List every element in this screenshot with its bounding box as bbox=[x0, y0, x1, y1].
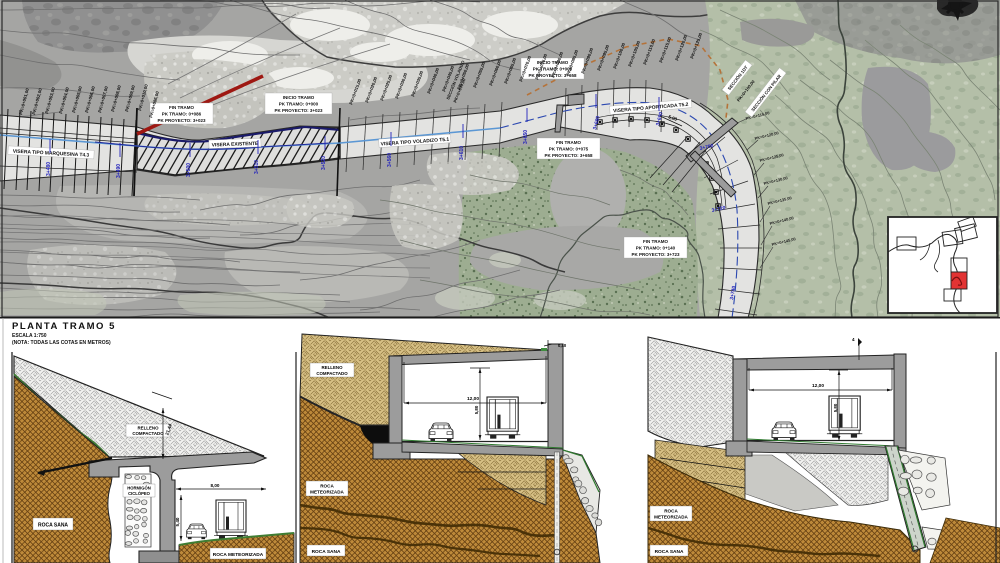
svg-text:5,40: 5,40 bbox=[175, 517, 180, 526]
svg-text:ROCA SANA: ROCA SANA bbox=[312, 549, 341, 555]
svg-text:PK TRAMO: 0+086: PK TRAMO: 0+086 bbox=[162, 112, 202, 117]
svg-text:8,00: 8,00 bbox=[211, 483, 220, 488]
svg-text:(NOTA: TODAS LAS COTAS EN METR: (NOTA: TODAS LAS COTAS EN METROS) bbox=[12, 340, 111, 346]
svg-text:ROCA: ROCA bbox=[664, 509, 678, 514]
svg-text:PK TRAMO: 0+075: PK TRAMO: 0+075 bbox=[549, 147, 589, 152]
svg-text:METEORIZADA: METEORIZADA bbox=[310, 490, 344, 495]
svg-text:FIN TRAMO: FIN TRAMO bbox=[556, 140, 581, 145]
svg-text:INICIO TRAMO: INICIO TRAMO bbox=[283, 95, 315, 100]
svg-text:3+650: 3+650 bbox=[523, 130, 529, 144]
svg-text:3+520: 3+520 bbox=[321, 156, 327, 170]
svg-text:PK PROYECTO: 3+023: PK PROYECTO: 3+023 bbox=[157, 118, 206, 123]
svg-text:PK PROYECTO: 3+723: PK PROYECTO: 3+723 bbox=[631, 252, 680, 257]
svg-text:ESCALA 1:750: ESCALA 1:750 bbox=[12, 333, 47, 339]
svg-text:PK PROYECTO: 3+658: PK PROYECTO: 3+658 bbox=[544, 153, 593, 158]
svg-text:0,40: 0,40 bbox=[558, 343, 567, 348]
svg-text:3+490: 3+490 bbox=[116, 164, 122, 178]
svg-text:COMPACTADO: COMPACTADO bbox=[132, 431, 164, 436]
svg-text:PK TRAMO: 0+000: PK TRAMO: 0+000 bbox=[279, 102, 319, 107]
svg-text:PK PROYECTO: 3+023: PK PROYECTO: 3+023 bbox=[274, 108, 323, 113]
svg-text:3+480: 3+480 bbox=[46, 162, 52, 176]
svg-text:5,80: 5,80 bbox=[474, 405, 479, 414]
svg-text:12,00: 12,00 bbox=[812, 383, 824, 389]
svg-text:12,00: 12,00 bbox=[467, 396, 479, 402]
svg-text:3+500: 3+500 bbox=[186, 163, 192, 177]
svg-text:PK TRAMO: 0+140: PK TRAMO: 0+140 bbox=[636, 246, 676, 251]
svg-text:COMPACTADO: COMPACTADO bbox=[316, 371, 348, 376]
svg-text:ROCA METEORIZADA: ROCA METEORIZADA bbox=[213, 552, 264, 558]
svg-text:PLANTA TRAMO 5: PLANTA TRAMO 5 bbox=[12, 321, 116, 332]
svg-text:RELLENO: RELLENO bbox=[138, 426, 160, 431]
svg-text:3+610: 3+610 bbox=[459, 146, 465, 160]
svg-text:RELLENO: RELLENO bbox=[322, 365, 344, 370]
svg-text:3+510: 3+510 bbox=[254, 160, 260, 174]
svg-text:CICLÓPEO: CICLÓPEO bbox=[128, 491, 151, 496]
svg-text:HORMIGÓN: HORMIGÓN bbox=[127, 486, 151, 491]
svg-text:5,80: 5,80 bbox=[833, 403, 838, 412]
svg-text:3+560: 3+560 bbox=[387, 153, 393, 167]
svg-text:FIN TRAMO: FIN TRAMO bbox=[169, 105, 194, 110]
svg-text:ROCA SANA: ROCA SANA bbox=[655, 549, 684, 555]
svg-text:ROCA SANA: ROCA SANA bbox=[38, 523, 68, 529]
svg-text:4: 4 bbox=[852, 337, 855, 342]
svg-text:METEORIZADA: METEORIZADA bbox=[654, 515, 688, 520]
svg-text:FIN TRAMO: FIN TRAMO bbox=[643, 239, 668, 244]
svg-text:ROCA: ROCA bbox=[320, 484, 334, 489]
